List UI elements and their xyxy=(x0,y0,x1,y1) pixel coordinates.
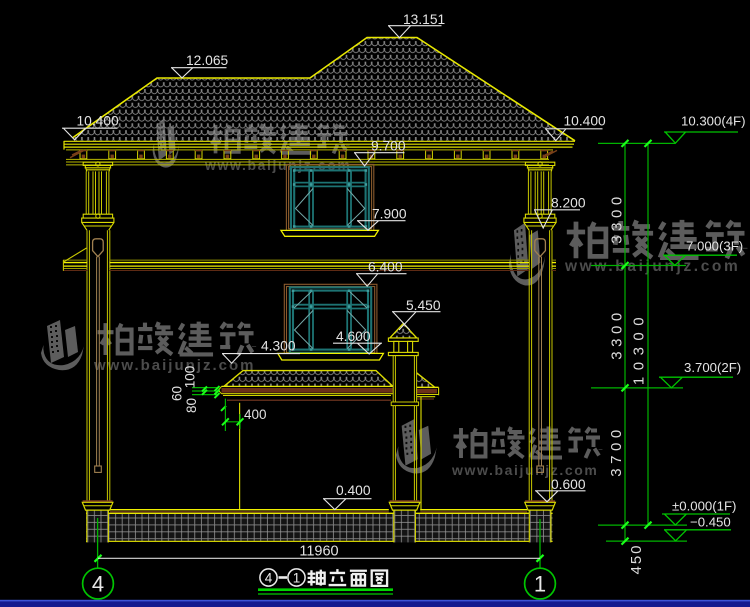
svg-text:12.065: 12.065 xyxy=(186,53,229,68)
svg-text:−0.450: −0.450 xyxy=(690,515,731,530)
svg-text:100: 100 xyxy=(183,366,198,389)
svg-text:400: 400 xyxy=(244,407,267,422)
svg-text:4.300: 4.300 xyxy=(261,339,296,354)
svg-text:7.000(3F): 7.000(3F) xyxy=(686,239,743,254)
svg-text:www.baijunjz.com: www.baijunjz.com xyxy=(451,462,598,478)
svg-text:10.300(4F): 10.300(4F) xyxy=(681,114,746,129)
svg-text:80: 80 xyxy=(184,398,199,413)
svg-text:60: 60 xyxy=(170,386,185,401)
svg-text:1: 1 xyxy=(293,571,301,586)
svg-text:0.400: 0.400 xyxy=(336,483,371,498)
svg-text:4: 4 xyxy=(265,571,273,586)
svg-text:13.151: 13.151 xyxy=(403,12,445,27)
svg-text:6.400: 6.400 xyxy=(368,260,403,275)
svg-text:10300: 10300 xyxy=(631,311,648,385)
svg-text:10.400: 10.400 xyxy=(564,114,607,129)
svg-text:8.200: 8.200 xyxy=(551,196,586,211)
svg-text:450: 450 xyxy=(628,543,645,574)
svg-text:3300: 3300 xyxy=(609,192,626,243)
svg-text:4: 4 xyxy=(92,572,104,597)
svg-text:3.700(2F): 3.700(2F) xyxy=(684,360,741,375)
svg-text:10.400: 10.400 xyxy=(77,114,120,129)
svg-text:9.700: 9.700 xyxy=(371,139,406,154)
svg-text:5.450: 5.450 xyxy=(406,298,441,313)
svg-text:7.900: 7.900 xyxy=(372,207,407,222)
svg-text:0.600: 0.600 xyxy=(551,477,586,492)
svg-text:www.baijunjz.com: www.baijunjz.com xyxy=(564,258,740,275)
svg-text:3300: 3300 xyxy=(609,308,626,359)
svg-text:±0.000(1F): ±0.000(1F) xyxy=(672,499,736,514)
svg-text:1: 1 xyxy=(534,572,546,597)
svg-text:11960: 11960 xyxy=(299,544,338,560)
svg-text:3700: 3700 xyxy=(608,425,625,476)
svg-text:www.baijunjz.com: www.baijunjz.com xyxy=(93,357,255,374)
svg-text:4.600: 4.600 xyxy=(336,329,371,344)
